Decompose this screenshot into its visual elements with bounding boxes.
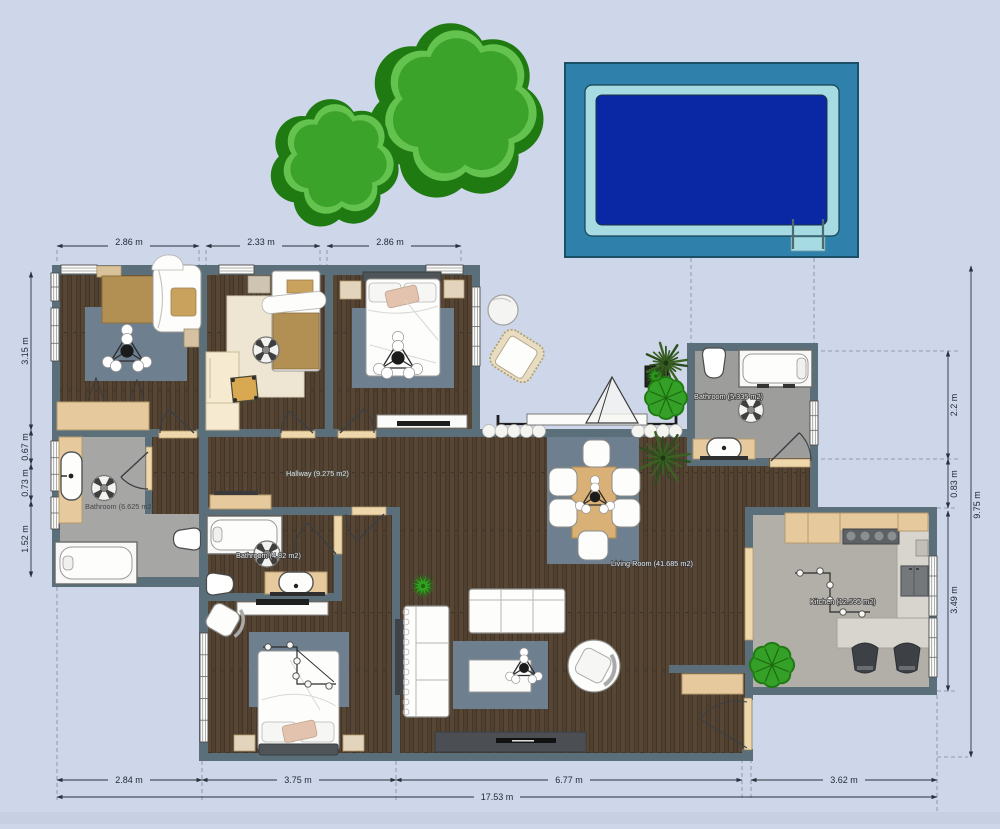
svg-text:Living Room (41.685 m2): Living Room (41.685 m2)	[611, 559, 693, 568]
svg-text:0.67 m: 0.67 m	[20, 433, 30, 461]
svg-text:3.62 m: 3.62 m	[830, 775, 858, 785]
svg-text:6.77 m: 6.77 m	[555, 775, 583, 785]
svg-text:Bathroom (6.625 m2): Bathroom (6.625 m2)	[85, 502, 154, 511]
svg-text:Kitchen (12.595 m2): Kitchen (12.595 m2)	[810, 597, 876, 606]
svg-text:9.75 m: 9.75 m	[972, 491, 982, 519]
svg-text:0.83 m: 0.83 m	[949, 470, 959, 498]
svg-text:2.86 m: 2.86 m	[376, 237, 404, 247]
svg-text:2.33 m: 2.33 m	[247, 237, 275, 247]
svg-text:1.52 m: 1.52 m	[20, 525, 30, 553]
svg-text:3.15 m: 3.15 m	[20, 337, 30, 365]
svg-text:Bathroom (5.335 m2): Bathroom (5.335 m2)	[694, 392, 763, 401]
svg-text:3.49 m: 3.49 m	[949, 586, 959, 614]
svg-text:2.2 m: 2.2 m	[949, 394, 959, 417]
svg-text:3.75 m: 3.75 m	[284, 775, 312, 785]
svg-text:0.73 m: 0.73 m	[20, 469, 30, 497]
svg-text:Bathroom (4.82 m2): Bathroom (4.82 m2)	[236, 551, 301, 560]
svg-text:2.84 m: 2.84 m	[115, 775, 143, 785]
svg-text:2.86 m: 2.86 m	[115, 237, 143, 247]
svg-text:Hallway (9.275 m2): Hallway (9.275 m2)	[286, 469, 349, 478]
svg-text:17.53 m: 17.53 m	[481, 792, 514, 802]
